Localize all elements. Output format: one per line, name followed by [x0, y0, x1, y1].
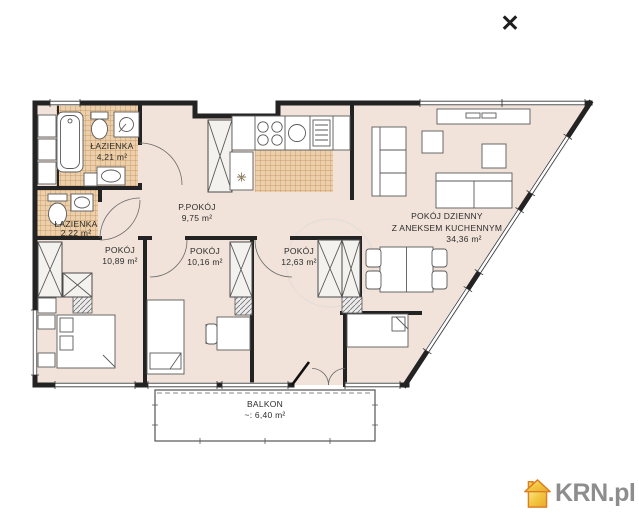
washing-machine: [114, 112, 139, 137]
bath-cabinet: [84, 173, 97, 186]
wardrobe: [318, 240, 360, 297]
armchair: [482, 144, 506, 168]
armchair: [422, 131, 443, 153]
room-area: ~: 6,40 m²: [244, 410, 285, 420]
floorplan-image: ŁAZIENKA 4,21 m² ŁAZIENKA 2,22 m² P.POKÓ…: [0, 0, 639, 527]
sofa-horizontal: [436, 173, 512, 208]
room-label: P.POKÓJ: [178, 202, 216, 212]
room-label: POKÓJ DZIENNY: [411, 211, 483, 221]
wall-hatch-block: [342, 297, 362, 313]
wall-hatch-block: [73, 297, 92, 313]
floorplan-viewer: ŁAZIENKA 4,21 m² ŁAZIENKA 2,22 m² P.POKÓ…: [0, 0, 639, 527]
sideboard: [437, 109, 530, 124]
toilet: [91, 112, 108, 139]
room-area: 10,16 m²: [187, 257, 223, 267]
room-area: 4,21 m²: [97, 152, 128, 162]
close-button[interactable]: ✕: [497, 10, 523, 36]
room-label: Z ANEKSEM KUCHENNYM: [392, 223, 503, 233]
tall-cabinet: [208, 120, 232, 192]
krn-logo-text: KRN.pl: [555, 479, 635, 508]
room-label: POKÓJ: [105, 245, 135, 255]
close-icon: ✕: [500, 10, 519, 36]
room-area: 2,22 m²: [61, 228, 92, 238]
room-area: 12,63 m²: [281, 257, 317, 267]
kitchen-tiles: [255, 150, 333, 192]
nightstand: [38, 315, 55, 329]
krn-house-icon: [523, 477, 552, 510]
double-bed: [57, 315, 115, 368]
sofa-vertical: [372, 127, 406, 196]
room-label: ŁAZIENKA: [90, 141, 133, 151]
kitchen-unit: [230, 152, 253, 190]
room-label: BALKON: [247, 399, 283, 409]
dresser: [63, 273, 92, 297]
room-label: POKÓJ: [284, 246, 314, 256]
krn-logo[interactable]: KRN.pl: [523, 477, 635, 510]
nightstand: [38, 353, 55, 367]
room-area: 10,89 m²: [102, 256, 138, 266]
wall-hatch-block: [235, 297, 252, 315]
kitchen-counter: [232, 116, 350, 150]
bathroom-sink: [97, 167, 125, 185]
daybed: [347, 314, 408, 347]
wardrobe: [38, 242, 62, 297]
room-area: 34,36 m²: [446, 234, 482, 244]
bedroom3-furniture: [318, 240, 360, 297]
hall-closet-shelves: [38, 115, 56, 184]
room-area: 9,75 m²: [182, 213, 213, 223]
wardrobe: [230, 242, 252, 297]
bathroom-sink: [71, 194, 93, 211]
single-bed: [147, 300, 184, 374]
cabinet: [38, 298, 56, 313]
room-label: POKÓJ: [190, 246, 220, 256]
